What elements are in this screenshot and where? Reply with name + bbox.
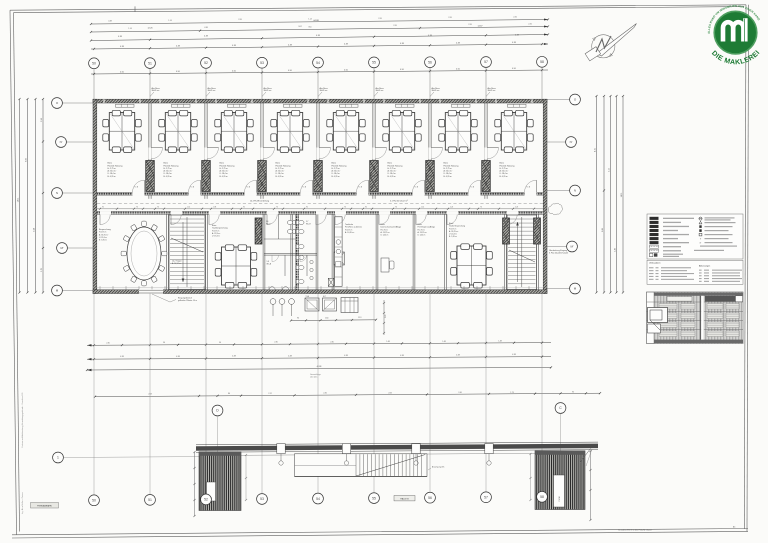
svg-text:4.50: 4.50 [120, 72, 124, 74]
svg-text:1.14: 1.14 [308, 19, 311, 21]
svg-text:A: 20,5 m²: A: 20,5 m² [164, 170, 173, 173]
svg-text:4.38: 4.38 [118, 36, 122, 38]
svg-text:WC-H: WC-H [306, 223, 311, 225]
svg-text:Flexible Nutzung: Flexible Nutzung [108, 164, 123, 167]
svg-text:52: 52 [204, 498, 208, 502]
svg-text:86: 86 [228, 393, 230, 395]
svg-text:A: 13,25 m²: A: 13,25 m² [418, 231, 428, 234]
svg-text:6.00: 6.00 [25, 158, 27, 162]
svg-text:2.46: 2.46 [323, 393, 326, 395]
svg-text:4.38: 4.38 [515, 34, 519, 36]
svg-text:4.38: 4.38 [232, 45, 236, 47]
svg-text:HALLE B: HALLE B [400, 498, 409, 501]
svg-text:52: 52 [204, 61, 208, 65]
svg-text:B: 4,35 m: B: 4,35 m [388, 176, 397, 178]
svg-text:90: 90 [102, 207, 104, 209]
svg-text:76: 76 [276, 207, 278, 209]
svg-text:51: 51 [148, 498, 152, 502]
svg-text:4.50: 4.50 [176, 71, 180, 73]
svg-text:90: 90 [365, 207, 367, 209]
svg-text:2.46: 2.46 [458, 392, 461, 394]
svg-text:54: 54 [316, 497, 320, 501]
svg-text:Flexible Nutzung: Flexible Nutzung [220, 164, 235, 167]
svg-text:Ing.-Büro Müller + Partner: Ing.-Büro Müller + Partner [21, 492, 24, 514]
svg-text:B: 5,35 m: B: 5,35 m [449, 236, 457, 238]
svg-text:1.14: 1.14 [128, 28, 131, 30]
svg-text:1.48: 1.48 [442, 341, 445, 343]
svg-text:Flexible Nutzung: Flexible Nutzung [388, 164, 403, 167]
svg-text:2.70: 2.70 [41, 268, 43, 272]
svg-text:B: 4,35 m: B: 4,35 m [332, 176, 341, 178]
svg-text:12.26: 12.26 [147, 28, 153, 30]
svg-text:4.50: 4.50 [288, 70, 292, 72]
svg-text:4.38: 4.38 [316, 35, 320, 37]
svg-text:4.38: 4.38 [344, 44, 348, 46]
svg-text:2.12: 2.12 [268, 393, 271, 395]
svg-text:4.38: 4.38 [456, 355, 460, 357]
svg-text:14.4 Flur/Erschließung: 14.4 Flur/Erschließung [250, 200, 269, 203]
svg-text:Flexible Nutzung: Flexible Nutzung [444, 164, 459, 167]
svg-text:2.26: 2.26 [528, 23, 531, 25]
svg-text:ELT: ELT [323, 296, 326, 298]
svg-text:N': N' [60, 140, 63, 144]
svg-text:53: 53 [260, 61, 264, 65]
svg-text:Umbaudaten: Umbaudaten [649, 262, 660, 265]
svg-text:M': M' [570, 245, 573, 249]
svg-text:76: 76 [480, 207, 482, 209]
svg-text:B: 4,35 m: B: 4,35 m [444, 176, 453, 178]
svg-text:lt. Plan 04-04/117-04-05: lt. Plan 04-04/117-04-05 [549, 252, 568, 255]
svg-text:Flexible Nutzung: Flexible Nutzung [332, 164, 347, 167]
svg-text:2.30: 2.30 [274, 342, 277, 344]
svg-text:4.38: 4.38 [456, 43, 460, 45]
svg-text:57: 57 [484, 495, 488, 499]
svg-text:38x35 cm: 38x35 cm [320, 90, 328, 92]
svg-text:U: 19,4 m: U: 19,4 m [212, 236, 220, 238]
svg-text:4.38: 4.38 [512, 354, 516, 356]
svg-text:A: 26,25 m²: A: 26,25 m² [449, 230, 459, 233]
svg-text:Print/Kopier (o.Abstg): Print/Kopier (o.Abstg) [418, 226, 436, 229]
svg-text:N': N' [570, 140, 573, 144]
svg-text:4.38: 4.38 [120, 46, 124, 48]
svg-text:14.11: 14.11 [621, 193, 623, 198]
svg-text:U: 14,6 m: U: 14,6 m [381, 235, 389, 237]
svg-text:5.12: 5.12 [609, 168, 611, 172]
svg-text:1.13: 1.13 [358, 317, 361, 319]
svg-text:1.48: 1.48 [498, 341, 501, 343]
svg-text:Flexible Nutzung: Flexible Nutzung [500, 164, 515, 167]
svg-text:4.38: 4.38 [176, 46, 180, 48]
svg-text:2.26: 2.26 [468, 24, 471, 26]
svg-text:∅: ∅ [700, 242, 702, 245]
svg-text:50: 50 [92, 499, 96, 503]
svg-text:4.50: 4.50 [456, 69, 460, 71]
svg-text:2.26: 2.26 [448, 17, 451, 19]
svg-text:FREIRAUMBAHN: FREIRAUMBAHN [37, 505, 52, 508]
svg-text:4.50: 4.50 [400, 69, 404, 71]
svg-text:90: 90 [243, 207, 245, 209]
svg-text:4.38: 4.38 [120, 356, 124, 358]
svg-text:14.11: 14.11 [17, 198, 19, 203]
svg-text:Umbau und Aufstockung Verwaltu: Umbau und Aufstockung Verwaltungsgebäude… [21, 392, 24, 447]
svg-text:1.64: 1.64 [325, 317, 328, 319]
svg-text:Eingangsbereich: Eingangsbereich [178, 297, 192, 300]
svg-text:38x35 cm: 38x35 cm [488, 90, 496, 92]
svg-text:4.38: 4.38 [108, 21, 111, 23]
svg-text:57: 57 [484, 60, 488, 64]
svg-text:A: 13,25 m²: A: 13,25 m² [381, 231, 391, 234]
svg-text:2.26: 2.26 [450, 207, 453, 209]
svg-text:50: 50 [92, 62, 96, 66]
svg-text:A3: A3 [733, 526, 735, 529]
svg-text:1.38: 1.38 [213, 207, 216, 209]
svg-text:53: 53 [260, 497, 264, 501]
svg-text:4.38: 4.38 [428, 35, 432, 37]
svg-text:4.38: 4.38 [232, 356, 236, 358]
svg-text:54: 54 [316, 61, 320, 65]
svg-text:4.38: 4.38 [344, 355, 348, 357]
svg-text:56: 56 [428, 496, 432, 500]
svg-text:4.38: 4.38 [288, 355, 292, 357]
svg-text:38x35 cm: 38x35 cm [208, 90, 216, 92]
svg-text:A: 14,91 m²: A: 14,91 m² [172, 262, 182, 265]
svg-text:4.38: 4.38 [204, 27, 207, 29]
svg-text:2.26: 2.26 [378, 18, 381, 20]
svg-text:A: 20,5 m²: A: 20,5 m² [500, 170, 509, 173]
svg-text:1.48: 1.48 [386, 341, 389, 343]
svg-text:55: 55 [372, 61, 376, 65]
svg-text:N: N [56, 191, 58, 195]
svg-text:44.88: 44.88 [317, 366, 322, 368]
svg-text:B: 4,35 m: B: 4,35 m [108, 176, 117, 178]
svg-text:4.50: 4.50 [344, 70, 348, 72]
svg-text:Flexible Nutzung: Flexible Nutzung [276, 164, 291, 167]
svg-text:96: 96 [219, 342, 221, 344]
svg-text:Flexible Nutzung: Flexible Nutzung [164, 164, 179, 167]
svg-text:9.86: 9.86 [602, 228, 604, 232]
svg-text:5.64: 5.64 [33, 228, 35, 232]
svg-text:2.26: 2.26 [515, 207, 518, 209]
svg-text:96: 96 [163, 342, 165, 344]
svg-text:2.30: 2.30 [106, 342, 109, 344]
svg-text:76: 76 [344, 207, 346, 209]
svg-text:58: 58 [540, 495, 544, 499]
svg-text:38x35 cm: 38x35 cm [152, 90, 160, 92]
svg-text:51: 51 [148, 61, 152, 65]
svg-text:2.26: 2.26 [393, 25, 396, 27]
svg-text:1.14: 1.14 [168, 20, 171, 22]
svg-text:4.38: 4.38 [400, 355, 404, 357]
svg-text:76: 76 [395, 207, 397, 209]
svg-text:90: 90 [297, 318, 299, 320]
svg-text:4.38: 4.38 [512, 42, 516, 44]
svg-text:2.26: 2.26 [385, 315, 387, 318]
svg-text:A: 22,8 m²: A: 22,8 m² [212, 232, 221, 235]
svg-text:76: 76 [136, 207, 138, 209]
svg-text:Überdachung Eingang: Überdachung Eingang [549, 249, 567, 252]
svg-text:2.30: 2.30 [330, 341, 333, 343]
svg-text:5.1 Flur A: 64,02 m²: 5.1 Flur A: 64,02 m² [390, 200, 408, 203]
svg-text:3.02: 3.02 [298, 26, 301, 28]
svg-text:55: 55 [372, 496, 376, 500]
svg-text:A: 33,75 m²: A: 33,75 m² [99, 233, 109, 236]
svg-text:95: 95 [572, 392, 574, 394]
svg-text:N: N [574, 189, 576, 193]
svg-text:griffsicher Pflaster 10 m: griffsicher Pflaster 10 m [178, 299, 197, 302]
svg-text:B: 4,35 m: B: 4,35 m [276, 176, 285, 178]
svg-text:38x35 cm: 38x35 cm [264, 90, 272, 92]
svg-text:90: 90 [306, 207, 308, 209]
svg-text:B: 4,35 m: B: 4,35 m [164, 176, 173, 178]
svg-text:Teambesprechung: Teambesprechung [212, 227, 228, 230]
svg-text:14.67: 14.67 [477, 26, 483, 28]
svg-text:A: 20,5 m²: A: 20,5 m² [108, 170, 117, 173]
svg-text:4.38: 4.38 [400, 43, 404, 45]
svg-text:2.58: 2.58 [41, 118, 43, 122]
svg-text:über alles: über alles [310, 375, 317, 378]
svg-text:Print/Serv. (o.Dienst): Print/Serv. (o.Dienst) [345, 226, 362, 229]
svg-text:76: 76 [157, 207, 159, 209]
svg-text:4.50: 4.50 [232, 71, 236, 73]
svg-text:4.38: 4.38 [176, 356, 180, 358]
svg-text:A: 20,5 m²: A: 20,5 m² [276, 170, 285, 173]
svg-text:1: 1 [57, 456, 59, 460]
svg-text:B: 5,90 m: B: 5,90 m [99, 240, 107, 242]
svg-text:B: 4,35 m: B: 4,35 m [500, 176, 509, 178]
svg-text:B: 4,35 m: B: 4,35 m [220, 176, 229, 178]
svg-text:56: 56 [428, 60, 432, 64]
svg-text:M': M' [60, 246, 63, 250]
svg-text:Teeküche: Teeküche [345, 224, 353, 226]
svg-text:2.26: 2.26 [238, 19, 241, 21]
svg-text:2.84: 2.84 [388, 392, 391, 394]
svg-text:U: 14,6 m: U: 14,6 m [418, 235, 426, 237]
svg-text:C1-W4: C1-W4 [559, 496, 561, 501]
svg-text:38x35 cm: 38x35 cm [376, 90, 384, 92]
svg-text:4.38: 4.38 [288, 44, 292, 46]
svg-text:A: 10,35 m²: A: 10,35 m² [345, 231, 355, 234]
svg-text:A: 20,5 m²: A: 20,5 m² [444, 170, 453, 173]
svg-text:1.14: 1.14 [421, 207, 424, 209]
svg-text:Gesamtlänge: Gesamtlänge [310, 373, 321, 376]
svg-text:Abkürzungen: Abkürzungen [699, 264, 710, 267]
svg-text:Anrampung 6%: Anrampung 6% [432, 466, 445, 469]
svg-text:44.88: 44.88 [313, 20, 319, 22]
svg-text:1.14: 1.14 [187, 207, 190, 209]
svg-text:2.43: 2.43 [615, 248, 617, 252]
svg-text:4.38: 4.38 [204, 35, 208, 37]
svg-text:2.26: 2.26 [513, 17, 516, 19]
svg-text:A: 20,5 m²: A: 20,5 m² [388, 170, 397, 173]
svg-text:Datenschutzraum/ Ablage: Datenschutzraum/ Ablage [381, 226, 402, 229]
svg-text:A: 20,5 m²: A: 20,5 m² [332, 170, 341, 173]
svg-text:A: 20,5 m²: A: 20,5 m² [220, 170, 229, 173]
svg-text:Grundriss EG M 1:100 Plan-Nr: Grundriss EG M 1:100 Plan-Nr. 04-117 [618, 530, 653, 532]
svg-text:4.25: 4.25 [594, 148, 596, 152]
svg-text:38x35 cm: 38x35 cm [432, 90, 440, 92]
svg-text:1.73: 1.73 [510, 392, 513, 394]
svg-text:58: 58 [540, 60, 544, 64]
svg-text:Besprechung: Besprechung [99, 229, 111, 231]
svg-text:4.50: 4.50 [512, 68, 516, 70]
